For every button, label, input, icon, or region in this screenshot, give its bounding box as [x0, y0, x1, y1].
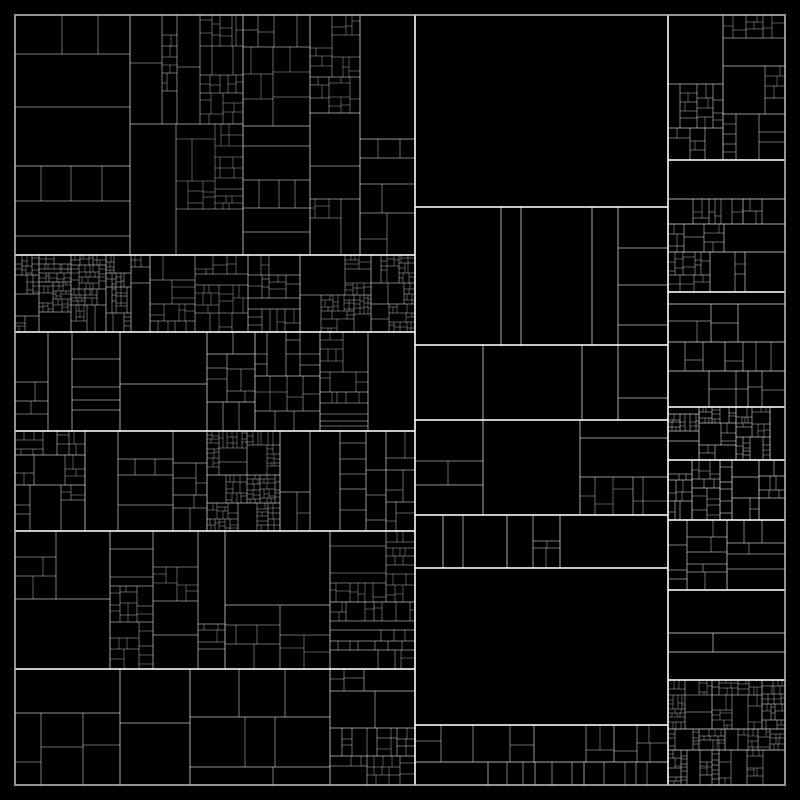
- generative-art-stage: [0, 0, 800, 800]
- recursive-subdivision-canvas: [0, 0, 800, 800]
